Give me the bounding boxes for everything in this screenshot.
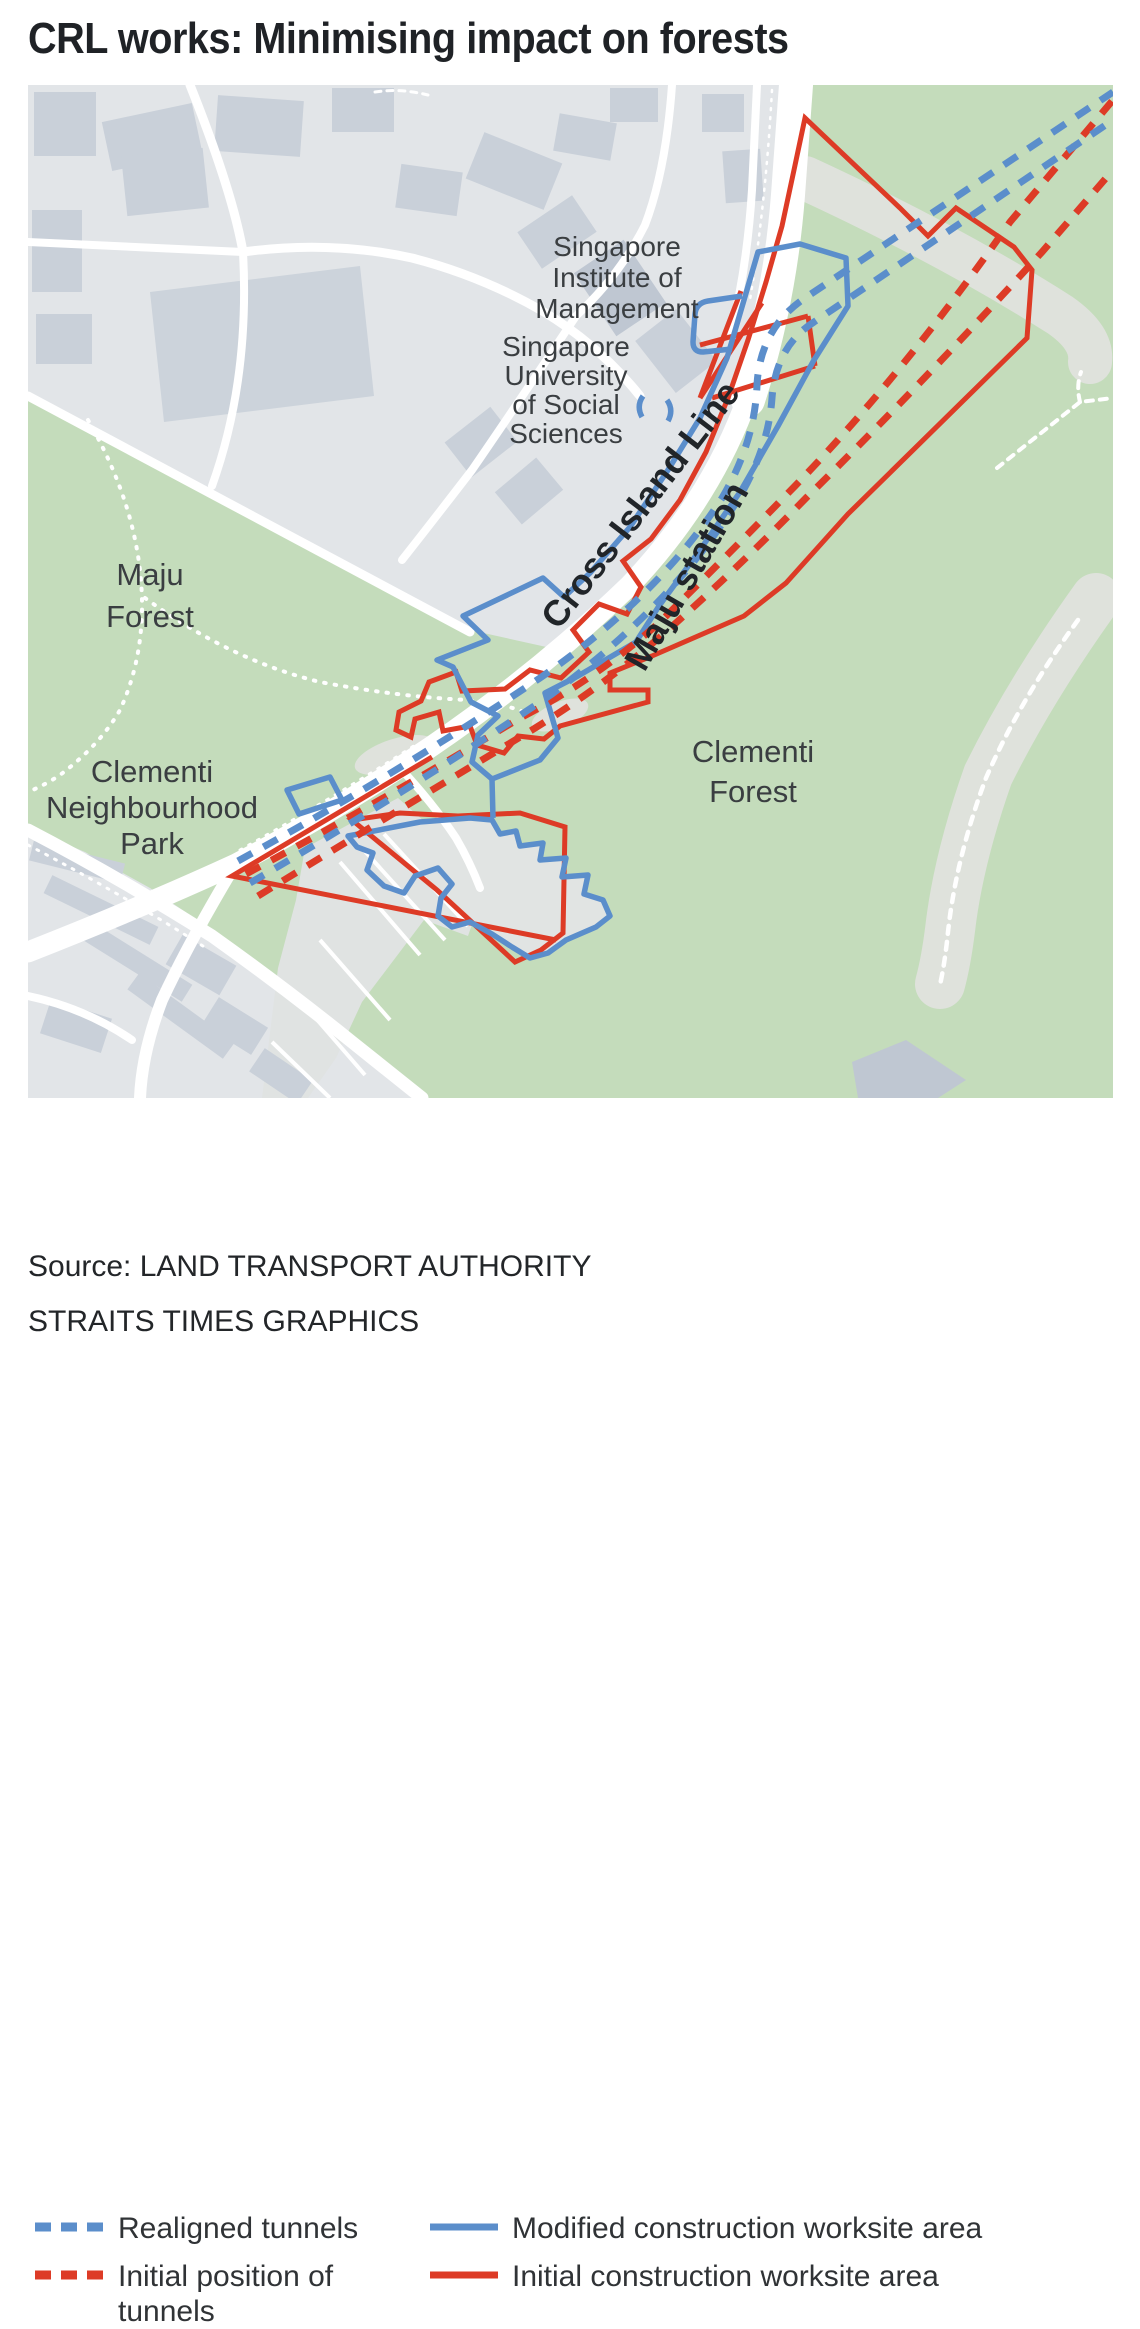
label-clementi-forest: Clementi bbox=[692, 734, 814, 769]
map-svg: Singapore Institute of Management Singap… bbox=[28, 85, 1113, 1098]
initial-tunnels-swatch bbox=[35, 2270, 105, 2280]
svg-text:Park: Park bbox=[120, 826, 184, 861]
credit-line: STRAITS TIMES GRAPHICS bbox=[28, 1305, 419, 1339]
source-line: Source: LAND TRANSPORT AUTHORITY bbox=[28, 1250, 591, 1284]
page-title: CRL works: Minimising impact on forests bbox=[28, 14, 789, 64]
svg-text:University: University bbox=[505, 360, 628, 391]
svg-text:Institute of: Institute of bbox=[552, 262, 681, 293]
label-maju-forest: Maju bbox=[116, 557, 183, 592]
legend-realigned-tunnels: Realigned tunnels bbox=[118, 2211, 358, 2246]
svg-text:Forest: Forest bbox=[106, 599, 194, 634]
svg-text:of Social: of Social bbox=[512, 389, 619, 420]
initial-worksite-swatch bbox=[430, 2271, 498, 2279]
legend-modified-worksite: Modified construction worksite area bbox=[512, 2211, 982, 2246]
svg-text:Sciences: Sciences bbox=[509, 418, 623, 449]
svg-text:Forest: Forest bbox=[709, 774, 797, 809]
legend-initial-worksite: Initial construction worksite area bbox=[512, 2259, 939, 2294]
svg-text:Neighbourhood: Neighbourhood bbox=[46, 790, 258, 825]
label-clementi-park: Clementi bbox=[91, 754, 213, 789]
map: Singapore Institute of Management Singap… bbox=[28, 85, 1113, 1098]
label-sim: Singapore bbox=[553, 231, 681, 262]
legend-initial-tunnels: Initial position of tunnels bbox=[118, 2259, 408, 2329]
realigned-tunnels-swatch bbox=[35, 2222, 105, 2232]
svg-text:Management: Management bbox=[535, 293, 699, 324]
label-suss: Singapore bbox=[502, 331, 630, 362]
modified-worksite-swatch bbox=[430, 2223, 498, 2231]
